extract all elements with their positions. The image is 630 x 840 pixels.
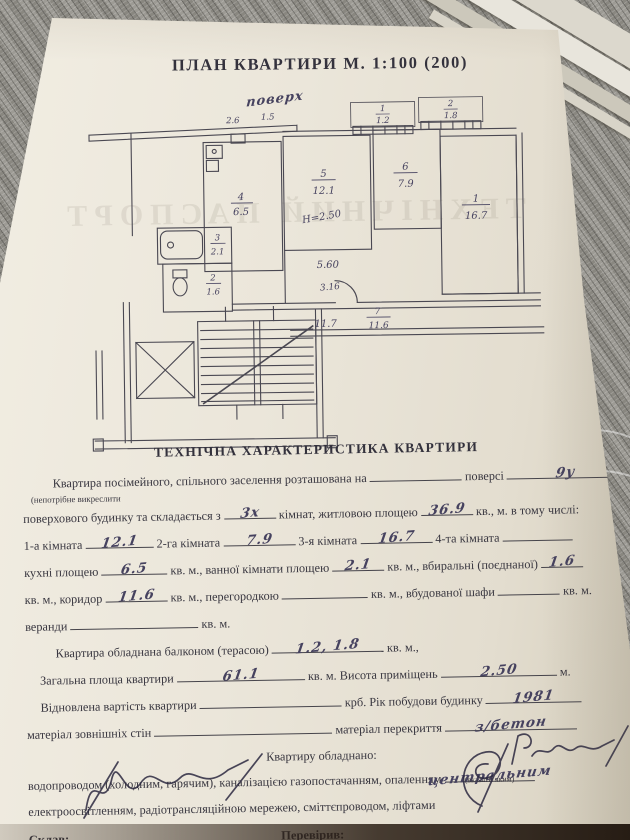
toilet-icon bbox=[173, 270, 187, 278]
wc-area-blank: 1.6 bbox=[541, 555, 583, 568]
living-area-blank: 36.9 bbox=[421, 503, 473, 516]
form-line-value-year: Відновлена вартість квартири крб. Рік по… bbox=[26, 690, 614, 715]
height-note: Н=2.50 bbox=[300, 209, 342, 227]
room-label-area: 11.6 bbox=[369, 321, 389, 331]
room-label-area: 7.9 bbox=[398, 179, 415, 190]
room-6 bbox=[373, 129, 441, 229]
form-line-kitchen-bath: кухні площею 6.5 кв. м., ванної кімнати … bbox=[24, 555, 612, 580]
handwritten-build-year: 1981 bbox=[512, 688, 556, 706]
page-title: ПЛАН КВАРТИРИ М. 1:100 (200) bbox=[150, 52, 490, 76]
veranda-blank bbox=[70, 616, 198, 630]
bath-area-blank: 2.1 bbox=[332, 559, 384, 572]
form-line-utilities-2: електроосвітленням, радіотрансляційною м… bbox=[28, 795, 616, 819]
dim-top-b: 1.5 bbox=[261, 113, 275, 123]
form-line-room-areas: 1-а кімната 12.1 2-га кімната 7.9 3-я кі… bbox=[24, 528, 612, 553]
balcony-label-area: 1.8 bbox=[444, 111, 458, 121]
handwritten-total-area: 61.1 bbox=[221, 666, 260, 683]
technical-characteristics-form: ТЕХНІЧНА ХАРАКТЕРИСТИКА КВАРТИРИ Квартир… bbox=[22, 438, 617, 840]
handwritten-ceiling-height: 2.50 bbox=[479, 662, 518, 679]
handwritten-note-poverh: поверх bbox=[246, 88, 305, 110]
handwritten-room1-area: 12.1 bbox=[100, 534, 139, 551]
form-line-equipped: Квартиру обладнано: bbox=[27, 744, 615, 768]
dim-top-a: 2.6 bbox=[225, 116, 240, 126]
wc-room bbox=[163, 263, 233, 312]
plan-walls bbox=[89, 96, 546, 451]
balcony-label-num: 2 bbox=[447, 99, 454, 109]
ceiling-material-blank: з/бетон bbox=[445, 717, 577, 731]
closet-blank bbox=[498, 583, 560, 596]
plan-labels: 4 6.5 5 12.1 6 7.9 1 16.7 3 2.1 2 1.6 7 bbox=[204, 99, 492, 334]
form-line-corridor: кв. м., коридор 11.6 кв. м., перегородко… bbox=[25, 582, 613, 607]
kitchen-room bbox=[203, 141, 283, 271]
document-sheet: ПЛАН КВАРТИРИ М. 1:100 (200) поверх ТЕХН… bbox=[0, 0, 630, 840]
room4-area-blank bbox=[502, 528, 572, 541]
room-label-num: 5 bbox=[320, 169, 327, 180]
kitchen-area-blank: 6.5 bbox=[101, 562, 167, 575]
handwritten-wc-area: 1.6 bbox=[548, 553, 577, 570]
handwritten-rooms-count: 3х bbox=[239, 505, 261, 521]
corridor-area-blank: 11.6 bbox=[105, 589, 167, 602]
room-label-num: 3 bbox=[215, 233, 221, 243]
build-year-blank: 1981 bbox=[486, 690, 582, 704]
room-5 bbox=[283, 135, 372, 250]
room-1 bbox=[440, 135, 518, 294]
handwritten-balcony-areas: 1.2, 1.8 bbox=[295, 637, 361, 657]
form-line-total-area: Загальна площа квартири 61.1 кв. м. Висо… bbox=[26, 663, 614, 688]
table-shadow bbox=[0, 824, 630, 840]
form-line-materials: матеріал зовнішніх стін матеріал перекри… bbox=[27, 717, 615, 742]
room2-area-blank: 7.9 bbox=[223, 533, 295, 546]
signature-scrawl bbox=[452, 738, 532, 818]
room-label-num: 6 bbox=[402, 162, 409, 173]
balcony-label-area: 1.2 bbox=[376, 116, 390, 126]
specify-note: (вказати яким) bbox=[465, 772, 515, 787]
handwritten-room3-area: 16.7 bbox=[377, 529, 416, 546]
handwritten-room2-area: 7.9 bbox=[245, 532, 274, 549]
blank-field bbox=[370, 468, 462, 482]
bleedthrough-watermark: ТЕХНІЧНИЙ ПАСПОРТ bbox=[58, 192, 529, 234]
stairs bbox=[197, 306, 317, 420]
room-label-area: 12.1 bbox=[313, 186, 335, 197]
restored-value-blank bbox=[200, 694, 342, 708]
bathroom bbox=[157, 227, 231, 264]
handwritten-bath-area: 2.1 bbox=[344, 557, 373, 574]
form-line-balcony: Квартира обладнана балконом (терасою) 1.… bbox=[25, 636, 613, 661]
ceiling-height-blank: 2.50 bbox=[441, 664, 557, 678]
rooms-count-blank: 3х bbox=[224, 507, 276, 520]
partition-blank bbox=[282, 586, 368, 599]
heating-type-blank: центральним (вказати яким) bbox=[444, 769, 534, 783]
bathtub bbox=[160, 231, 202, 260]
room-label-num: 4 bbox=[237, 192, 245, 203]
room-label-num: 2 bbox=[209, 273, 216, 283]
room3-area-blank: 16.7 bbox=[360, 531, 432, 544]
room-label-area: 2.1 bbox=[210, 247, 225, 257]
total-area-blank: 61.1 bbox=[177, 668, 305, 682]
handwritten-ceiling-material: з/бетон bbox=[474, 714, 548, 735]
handwritten-floor: 9у bbox=[555, 465, 577, 481]
elevator-shaft bbox=[136, 342, 195, 399]
floor-plan-drawing: 4 6.5 5 12.1 6 7.9 1 16.7 3 2.1 2 1.6 7 bbox=[83, 95, 548, 461]
form-heading: ТЕХНІЧНА ХАРАКТЕРИСТИКА КВАРТИРИ bbox=[22, 438, 610, 462]
balcony-1 bbox=[351, 102, 415, 128]
balcony-area-blank: 1.2, 1.8 bbox=[272, 640, 384, 654]
form-line-utilities: водопроводом (холодним, гарячим), каналі… bbox=[28, 768, 616, 793]
room1-area-blank: 12.1 bbox=[85, 536, 153, 549]
room-label-num: 7 bbox=[375, 307, 381, 317]
strike-note: (непотрібне викреслити bbox=[31, 483, 611, 507]
balcony-2 bbox=[418, 97, 482, 123]
handwritten-corridor-area: 11.6 bbox=[117, 587, 156, 604]
signature-sklav bbox=[78, 748, 278, 828]
photo-of-document: ПЛАН КВАРТИРИ М. 1:100 (200) поверх ТЕХН… bbox=[0, 0, 630, 840]
room-label-area: 6.5 bbox=[233, 207, 249, 218]
balcony-label-num: 1 bbox=[380, 104, 386, 114]
dim-room5-width: 5.60 bbox=[317, 260, 340, 271]
dim-corridor: 3.16 bbox=[320, 282, 341, 294]
signature-perevyriv bbox=[510, 722, 630, 792]
form-line-rooms-count: поверхового будинку та складається з 3х … bbox=[23, 501, 611, 526]
room-label-num: 1 bbox=[473, 194, 480, 205]
form-line-floor: Квартира посімейного, спільного заселенн… bbox=[22, 466, 610, 491]
room-label-area: 16.7 bbox=[465, 211, 488, 222]
dim-bottom: 11.7 bbox=[314, 319, 337, 330]
handwritten-living-area: 36.9 bbox=[427, 501, 466, 518]
handwritten-kitchen-area: 6.5 bbox=[120, 561, 149, 578]
handwritten-heating-type: центральним bbox=[427, 763, 553, 788]
form-line-veranda: веранди кв. м. bbox=[25, 609, 613, 634]
walls-material-blank bbox=[154, 722, 332, 737]
room-label-area: 1.6 bbox=[206, 287, 220, 297]
